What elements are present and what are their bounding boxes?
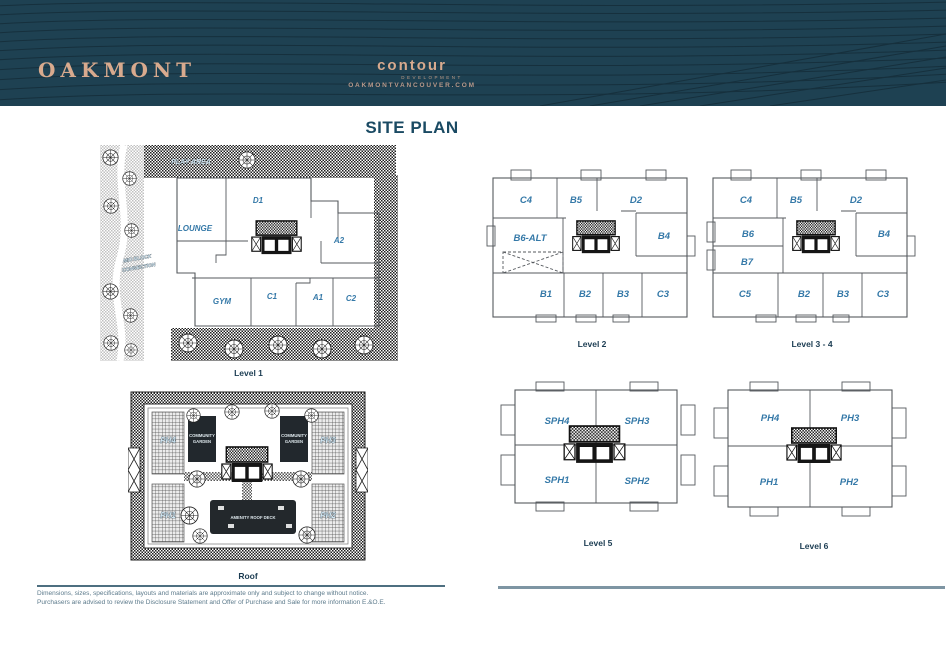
divider-line-right	[498, 586, 945, 589]
page-title: SITE PLAN	[312, 118, 512, 138]
disclaimer-line-2: Purchasers are advised to review the Dis…	[37, 599, 386, 608]
plan-caption: Roof	[128, 571, 368, 581]
level-3-4-drawing: C4 B5 D2 B6 B4 B7 C5 B2 B3 C3	[706, 166, 918, 328]
unit-label: C4	[520, 195, 533, 206]
unit-label: C3	[657, 289, 670, 300]
unit-label: C1	[267, 292, 278, 301]
unit-label: C2	[346, 294, 357, 303]
unit-label: A2	[333, 236, 345, 245]
level-2-drawing: C4 B5 D2 B6-ALT B4 B1 B2 B3 C3	[486, 166, 698, 328]
disclaimer-line-1: Dimensions, sizes, specifications, layou…	[37, 590, 386, 599]
unit-label: C3	[877, 289, 890, 300]
developer-logo: contour DEVELOPMENT	[332, 57, 492, 80]
unit-label: PH1	[160, 511, 176, 520]
level-5-drawing: SPH4 SPH3 SPH1 SPH2	[500, 381, 696, 527]
floorplan-level-3-4: C4 B5 D2 B6 B4 B7 C5 B2 B3 C3 Level 3 - …	[706, 166, 918, 349]
contour-wordmark: contour	[332, 57, 492, 74]
plan-caption: Level 3 - 4	[706, 339, 918, 349]
plan-caption: Level 5	[500, 538, 696, 548]
floorplan-level-2: C4 B5 D2 B6-ALT B4 B1 B2 B3 C3 Level 2	[486, 166, 698, 349]
level-1-drawing: PLAY AREA LOUNGE D1 A2 GYM C1 A1 C2 MID …	[96, 143, 401, 363]
unit-label: B3	[837, 289, 850, 300]
floorplan-level-5: SPH4 SPH3 SPH1 SPH2 Level 5	[500, 381, 696, 548]
unit-label: PH1	[760, 477, 778, 488]
unit-label: LOUNGE	[178, 224, 213, 233]
unit-label: PH3	[320, 436, 336, 445]
unit-label: B6-ALT	[513, 233, 547, 244]
community-garden-label: GARDEN	[285, 439, 303, 444]
contour-lines-pattern	[0, 0, 946, 106]
unit-label: B3	[617, 289, 630, 300]
developer-tagline: DEVELOPMENT	[332, 75, 492, 80]
unit-label: SPH3	[625, 416, 651, 427]
disclaimer-text: Dimensions, sizes, specifications, layou…	[37, 590, 386, 607]
unit-label: B2	[798, 289, 811, 300]
unit-label: A1	[312, 293, 324, 302]
unit-label: PH2	[320, 511, 336, 520]
unit-label: B4	[878, 229, 891, 240]
plan-caption: Level 1	[96, 368, 401, 378]
unit-label: SPH2	[625, 476, 651, 487]
unit-label: C4	[740, 195, 753, 206]
site-plan-page: OAKMONT contour DEVELOPMENT OAKMONTVANCO…	[0, 0, 946, 647]
floorplan-roof: PH4 PH3 PH1 PH2 COMMUNITY GARDEN COMMUNI…	[128, 388, 368, 581]
oakmont-logo: OAKMONT	[38, 58, 196, 82]
unit-label: B1	[540, 289, 552, 300]
unit-label: C5	[739, 289, 752, 300]
unit-label: D2	[630, 195, 643, 206]
unit-label: B6	[742, 229, 755, 240]
roof-drawing: PH4 PH3 PH1 PH2 COMMUNITY GARDEN COMMUNI…	[128, 388, 368, 566]
unit-label: D2	[850, 195, 863, 206]
unit-label: B7	[741, 257, 754, 268]
unit-label: PH4	[160, 436, 176, 445]
unit-label: B5	[790, 195, 803, 206]
unit-label: B5	[570, 195, 583, 206]
unit-label: GYM	[213, 297, 232, 306]
unit-label: SPH1	[545, 475, 570, 486]
divider-line-left	[37, 585, 445, 587]
brochure-header: OAKMONT contour DEVELOPMENT OAKMONTVANCO…	[0, 0, 946, 106]
unit-label: SPH4	[545, 416, 571, 427]
play-area-label: PLAY AREA	[171, 159, 211, 166]
plan-caption: Level 6	[710, 541, 918, 551]
unit-label: PH3	[841, 413, 860, 424]
floorplan-level-6: PH4 PH3 PH1 PH2 Level 6	[710, 378, 918, 551]
community-garden-label: COMMUNITY	[189, 433, 215, 438]
unit-label: PH2	[840, 477, 859, 488]
community-garden-label: GARDEN	[193, 439, 211, 444]
unit-label: PH4	[761, 413, 780, 424]
plan-caption: Level 2	[486, 339, 698, 349]
unit-label: D1	[253, 196, 264, 205]
unit-label: B2	[579, 289, 592, 300]
level-6-drawing: PH4 PH3 PH1 PH2	[710, 378, 918, 530]
unit-label: B4	[658, 231, 671, 242]
amenity-deck-label: AMENITY ROOF DECK	[230, 515, 275, 520]
community-garden-label: COMMUNITY	[281, 433, 307, 438]
floorplan-level-1: PLAY AREA LOUNGE D1 A2 GYM C1 A1 C2 MID …	[96, 143, 401, 378]
website-url: OAKMONTVANCOUVER.COM	[332, 82, 492, 89]
